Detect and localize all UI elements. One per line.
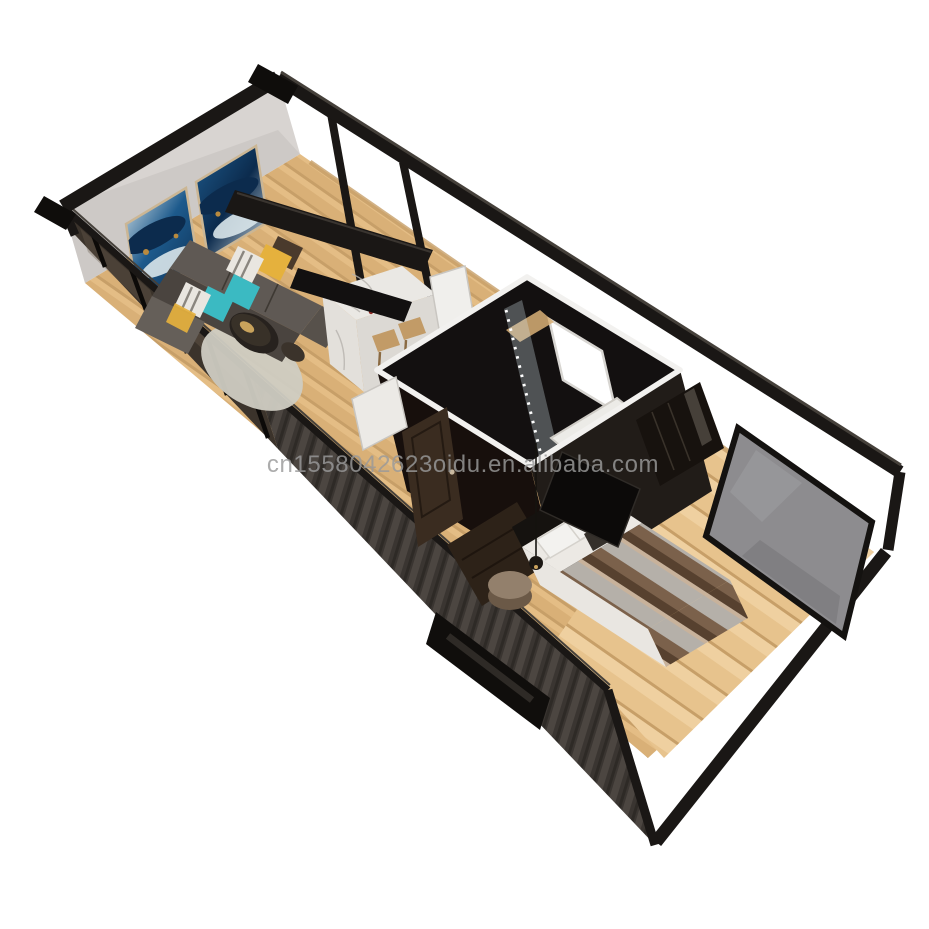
right-corner-post	[888, 472, 900, 550]
nightstand	[488, 571, 532, 610]
watermark-text: cn1558042623oidu.en.alibaba.com	[267, 451, 659, 478]
container-home-render: cn1558042623oidu.en.alibaba.com	[0, 0, 929, 929]
render-canvas: cn1558042623oidu.en.alibaba.com	[0, 0, 929, 929]
